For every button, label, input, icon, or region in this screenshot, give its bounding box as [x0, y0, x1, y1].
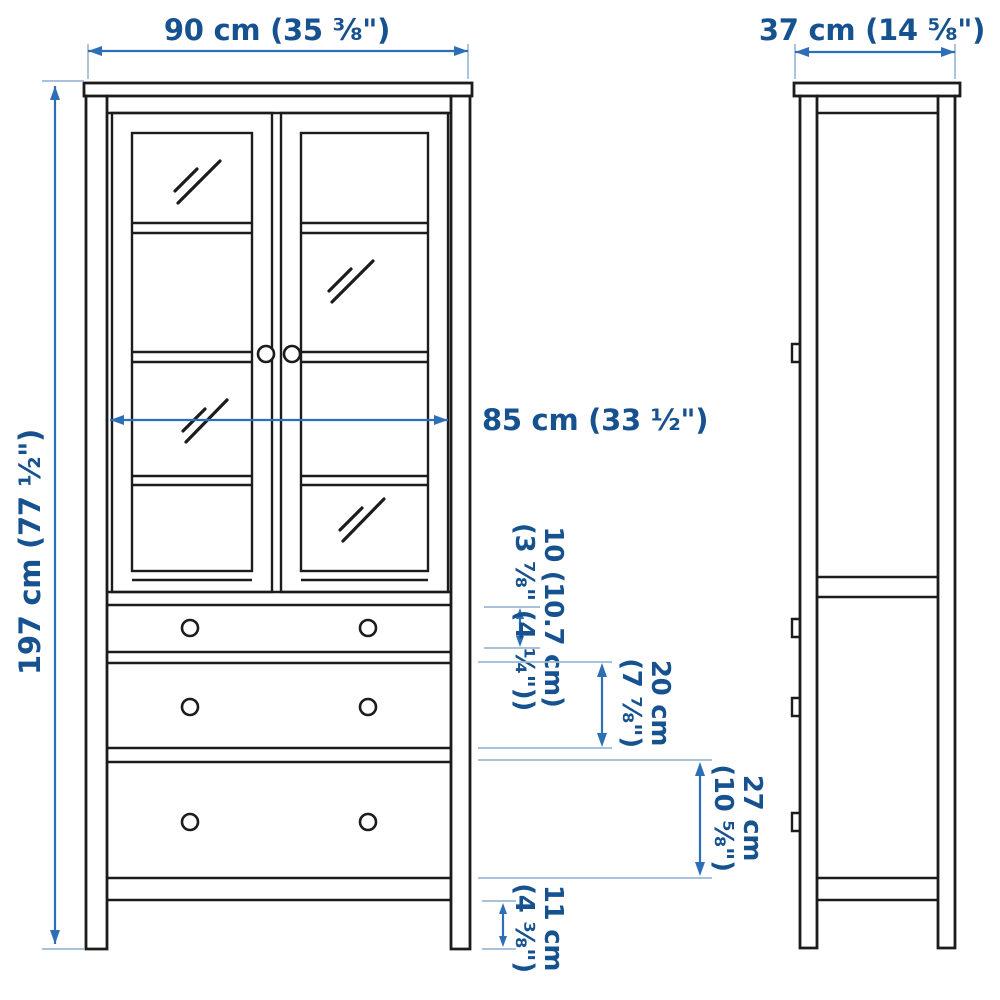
drawer-knob	[182, 699, 198, 715]
dimension-glass-door-width: 85 cm (33 ½")	[110, 403, 708, 437]
height-label: 197 cm (77 ½")	[13, 429, 47, 675]
middle-drawer-label-line1: 20 cm	[645, 660, 675, 746]
dimension-plinth: 11 cm (4 ⅜")	[482, 883, 568, 973]
arrow-right-icon	[454, 46, 468, 56]
door-mullions	[301, 223, 428, 580]
arrow-right-icon	[434, 415, 448, 425]
cabinet-dimension-diagram: 90 cm (35 ⅜") 37 cm (14 ⅝") 197 cm (77 ½…	[0, 0, 1000, 1000]
drawer-separator-lines	[107, 592, 451, 900]
drawer-section	[107, 592, 451, 900]
width-label: 90 cm (35 ⅜")	[164, 13, 390, 47]
glass-reflection-mark	[329, 261, 373, 302]
drawer-knob	[360, 620, 376, 636]
arrow-right-icon	[941, 47, 955, 57]
front-top-panel	[84, 83, 472, 96]
arrow-down-icon	[50, 930, 60, 944]
glass-reflection-mark	[175, 161, 220, 203]
front-view	[84, 83, 472, 949]
top-drawer-label-line1: 10 (10.7 cm)	[538, 526, 568, 707]
arrow-down-icon	[597, 733, 607, 747]
arrow-up-icon	[50, 86, 60, 100]
dimension-height: 197 cm (77 ½")	[13, 81, 84, 949]
glass-door-width-label: 85 cm (33 ½")	[482, 403, 708, 437]
arrow-left-icon	[88, 46, 102, 56]
dimension-depth: 37 cm (14 ⅝")	[759, 13, 985, 79]
extension-lines	[478, 760, 712, 878]
door-mullions	[132, 223, 252, 580]
bottom-drawer-label-line1: 27 cm	[737, 775, 767, 861]
arrow-left-icon	[795, 47, 809, 57]
drawer-knob	[182, 814, 198, 830]
plinth-label-line1: 11 cm	[538, 885, 568, 971]
arrow-up-icon	[597, 663, 607, 677]
side-top-panel	[794, 83, 960, 96]
glass-door-right	[281, 113, 448, 592]
plinth-label-line2: (4 ⅜")	[509, 883, 539, 973]
glass-reflection-mark	[340, 499, 384, 541]
drawer-knob	[182, 620, 198, 636]
glass-door-left	[112, 113, 274, 592]
drawer-knob	[360, 699, 376, 715]
side-rails	[817, 113, 938, 900]
bottom-drawer-label-line2: (10 ⅝")	[708, 764, 738, 871]
middle-drawer-label-line2: (7 ⅞")	[616, 658, 646, 748]
side-stiles	[800, 96, 955, 948]
extension-lines	[795, 44, 955, 79]
arrow-up-icon	[695, 762, 705, 776]
side-view	[792, 83, 960, 948]
extension-lines	[42, 81, 84, 949]
depth-label: 37 cm (14 ⅝")	[759, 13, 985, 47]
top-drawer-label-line2: (3 ⅞" (4 ¼"))	[509, 523, 539, 711]
door-knob	[258, 346, 274, 362]
dimension-middle-drawer: 20 cm (7 ⅞")	[478, 658, 675, 748]
dimension-width: 90 cm (35 ⅜")	[88, 13, 468, 79]
door-knob	[284, 346, 300, 362]
dimension-top-drawer: 10 (10.7 cm) (3 ⅞" (4 ¼"))	[484, 523, 568, 711]
arrow-up-icon	[499, 903, 507, 914]
arrow-down-icon	[695, 862, 705, 876]
drawer-knob	[360, 814, 376, 830]
arrow-down-icon	[499, 936, 507, 947]
extension-lines	[88, 44, 468, 79]
dimension-bottom-drawer: 27 cm (10 ⅝")	[478, 760, 767, 878]
